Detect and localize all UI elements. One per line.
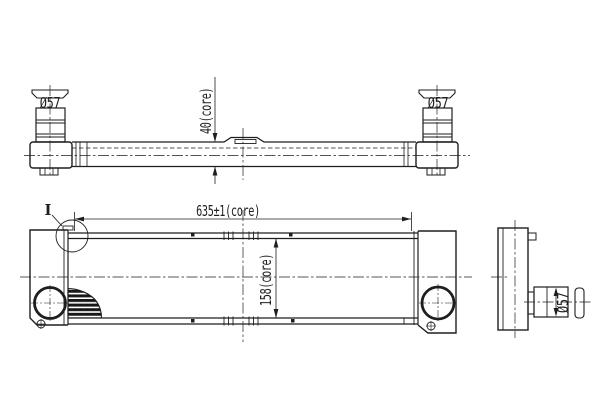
dim-core-width: 635±1(core)	[75, 203, 412, 231]
left-drain-plug	[36, 319, 46, 329]
technical-drawing: I 635±1(core)	[0, 0, 600, 400]
right-pipe-crosshair	[419, 284, 457, 322]
louver-fin-detail	[68, 289, 102, 319]
dim-core-height: 158(core)	[258, 239, 278, 319]
dia-side-port-label: Ø57	[555, 292, 573, 313]
dia-side-port: Ø57	[554, 288, 573, 317]
right-drain-plug	[426, 321, 436, 331]
dia-right-port-label: Ø57	[428, 95, 449, 113]
top-view-core-bar	[72, 138, 416, 167]
dimensions: 635±1(core) 158(core) 40(core) Ø57 Ø57 Ø…	[40, 77, 573, 318]
dim-core-height-label: 158(core)	[258, 254, 276, 306]
dim-core-width-label: 635±1(core)	[196, 203, 260, 221]
top-view-centerlines	[24, 85, 470, 180]
core-tick-marks	[224, 232, 258, 326]
side-view	[491, 220, 592, 338]
dia-left-port-label: Ø57	[40, 95, 61, 113]
detail-marker-label: I	[44, 201, 51, 219]
side-view-centerlines	[491, 220, 592, 338]
left-pipe-crosshair	[31, 285, 69, 321]
top-view	[24, 85, 470, 180]
front-view-left-tank	[30, 226, 102, 329]
hose-flange	[575, 288, 584, 318]
front-view-right-tank	[404, 231, 457, 333]
front-view: I	[20, 201, 472, 342]
dim-core-depth-label: 40(core)	[198, 88, 216, 134]
detail-marker: I	[44, 201, 88, 252]
top-view-left-tank	[30, 142, 72, 175]
drawing-canvas: I 635±1(core)	[0, 0, 600, 400]
dim-core-depth: 40(core)	[198, 77, 217, 184]
